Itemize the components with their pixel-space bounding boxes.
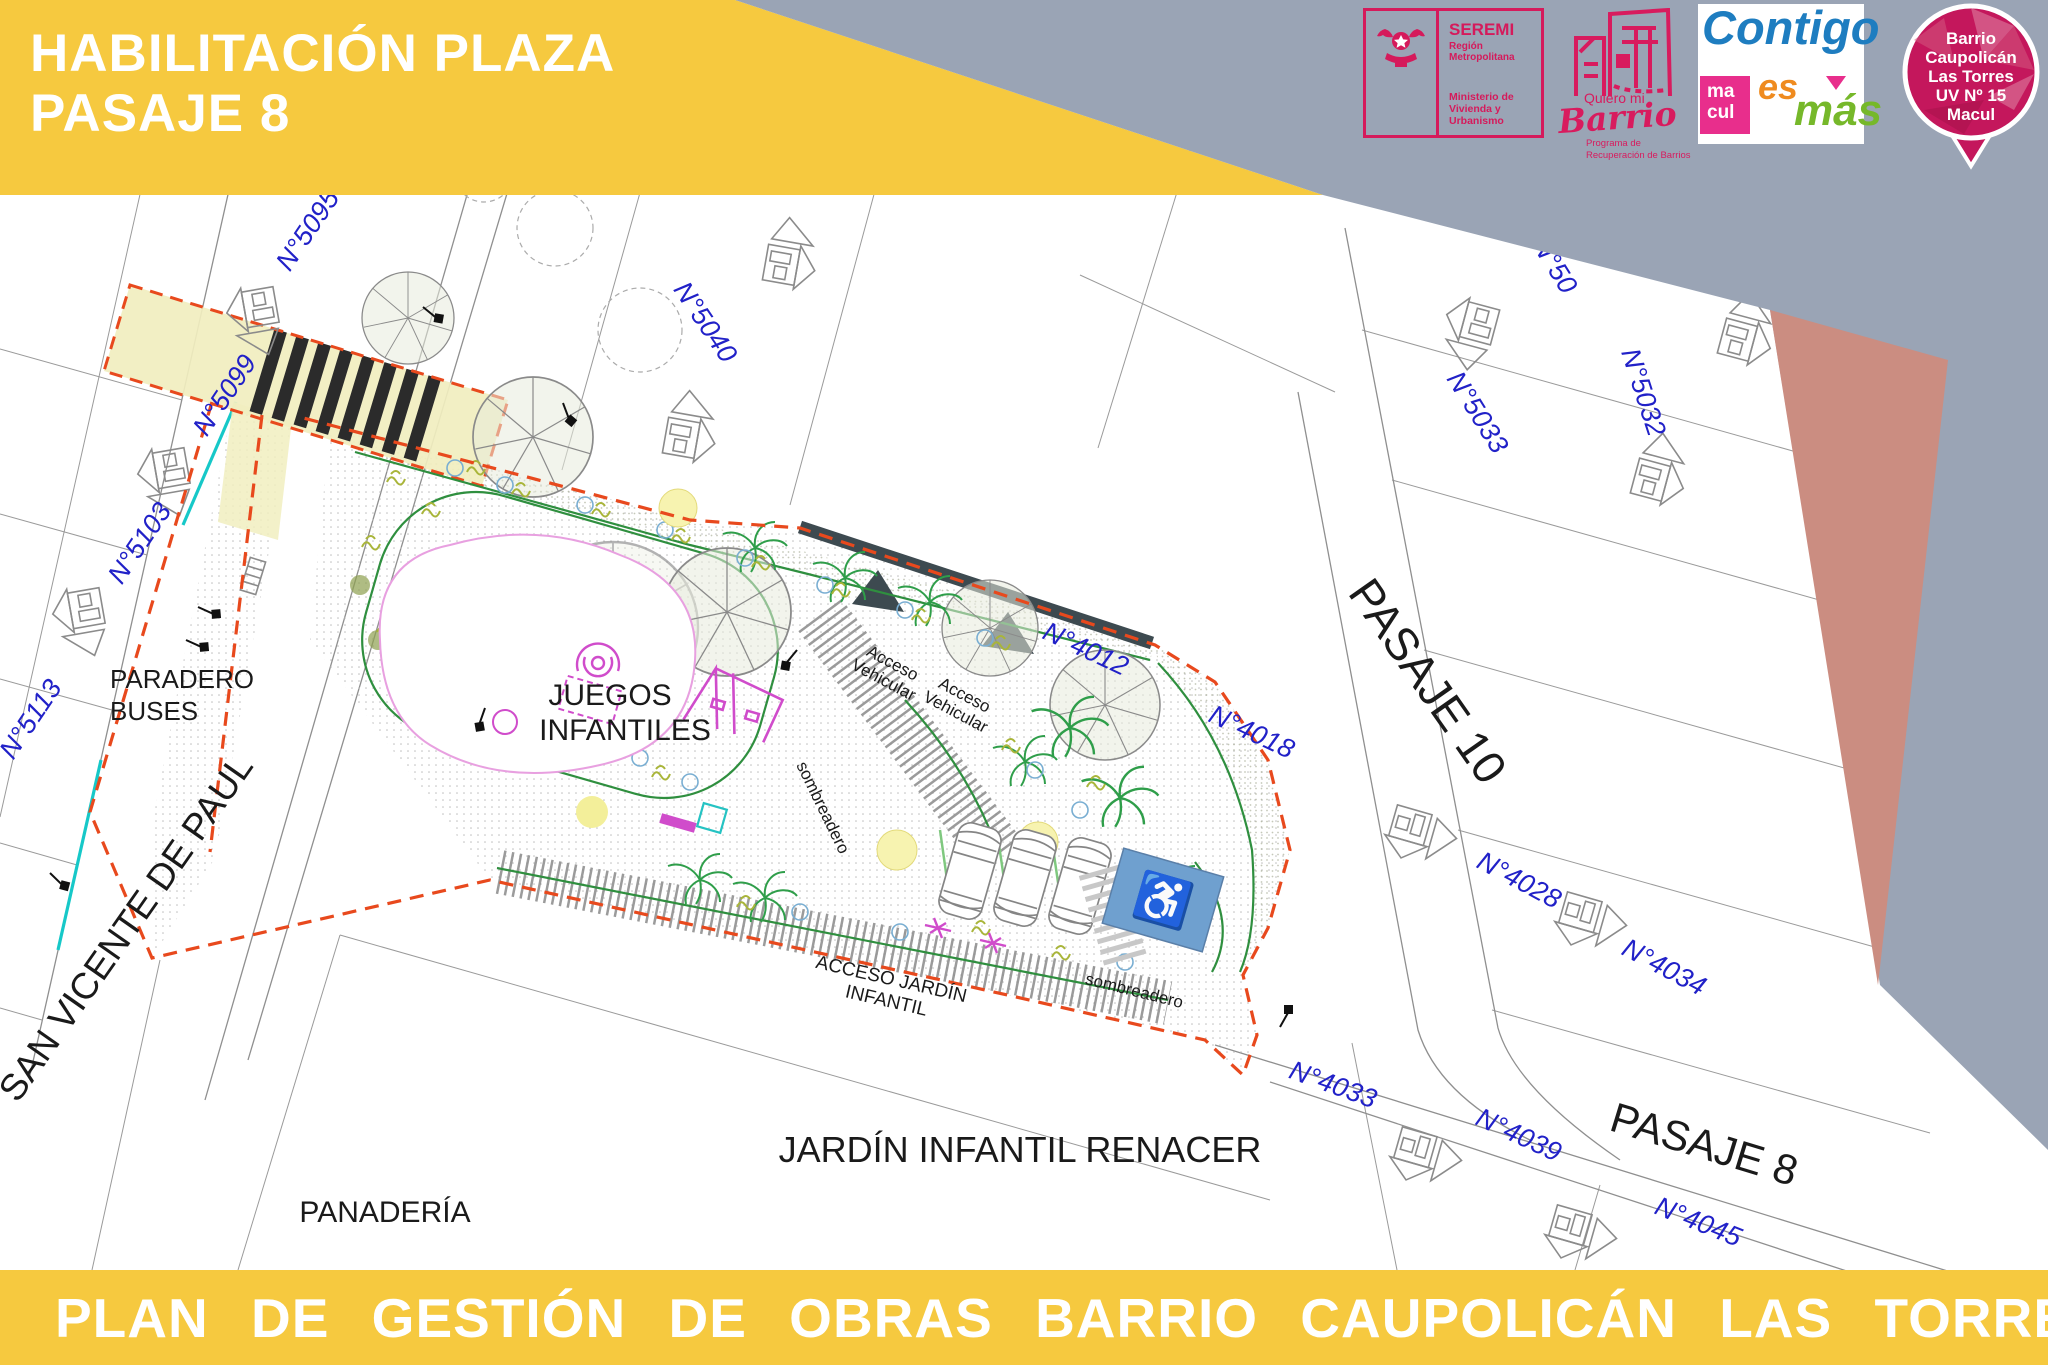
- badge-line4: UV Nº 15: [1936, 86, 2006, 105]
- barrio-illustration-icon: [1570, 8, 1678, 100]
- qmb-brand: Barrio: [1557, 94, 1678, 141]
- es-word: es: [1758, 66, 1798, 108]
- macul-line1: ma: [1707, 82, 1750, 103]
- contigo-es-mas-logo: Contigo ma cul es más: [1698, 4, 1864, 144]
- qmb-program-line1: Programa de: [1586, 138, 1691, 150]
- mas-word: más: [1794, 86, 1882, 136]
- contigo-word: Contigo: [1702, 0, 1880, 55]
- footer-banner: PLAN DE GESTIÓN DE OBRAS BARRIO CAUPOLIC…: [0, 1270, 2048, 1365]
- seremi-logo: SEREMI Región Metropolitana Ministerio d…: [1363, 8, 1544, 138]
- juegos-label: JUEGOS: [548, 679, 671, 712]
- chile-coat-of-arms-icon: [1366, 11, 1439, 135]
- panaderia-label: PANADERÍA: [299, 1196, 470, 1229]
- juegos-label: INFANTILES: [539, 714, 711, 747]
- macul-line2: cul: [1707, 103, 1750, 124]
- barrio-badge: Barrio Caupolicán Las Torres UV Nº 15 Ma…: [1894, 0, 2048, 170]
- ministry-line3: Urbanismo: [1449, 115, 1541, 127]
- badge-line3: Las Torres: [1928, 67, 2014, 86]
- paradero-label: PARADERO: [110, 664, 254, 694]
- seremi-region: Región Metropolitana: [1449, 41, 1541, 63]
- light-patch: [576, 796, 608, 828]
- page-title: HABILITACIÓN PLAZA PASAJE 8: [30, 24, 615, 144]
- quiero-mi-barrio-logo: Quiero mi Barrio Programa de Recuperació…: [1556, 6, 1696, 171]
- ministry-line1: Ministerio de: [1449, 91, 1541, 103]
- badge-line1: Barrio: [1946, 29, 1996, 48]
- badge-line2: Caupolicán: [1925, 48, 2017, 67]
- paradero-label: BUSES: [110, 696, 198, 726]
- qmb-program-line2: Recuperación de Barrios: [1586, 150, 1691, 162]
- title-line2: PASAJE 8: [30, 84, 615, 144]
- jardin-infantil-label: JARDÍN INFANTIL RENACER: [779, 1129, 1262, 1170]
- macul-box: ma cul: [1700, 76, 1750, 134]
- site-plan-svg: ♿ PARADERO: [0, 0, 2048, 1365]
- poster: ♿ PARADERO: [0, 0, 2048, 1365]
- footer-text: PLAN DE GESTIÓN DE OBRAS BARRIO CAUPOLIC…: [55, 1286, 2048, 1350]
- title-line1: HABILITACIÓN PLAZA: [30, 24, 615, 84]
- seremi-name: SEREMI: [1449, 21, 1541, 38]
- badge-line5: Macul: [1947, 105, 1995, 124]
- ministry-line2: Vivienda y: [1449, 103, 1541, 115]
- light-circle: [877, 830, 917, 870]
